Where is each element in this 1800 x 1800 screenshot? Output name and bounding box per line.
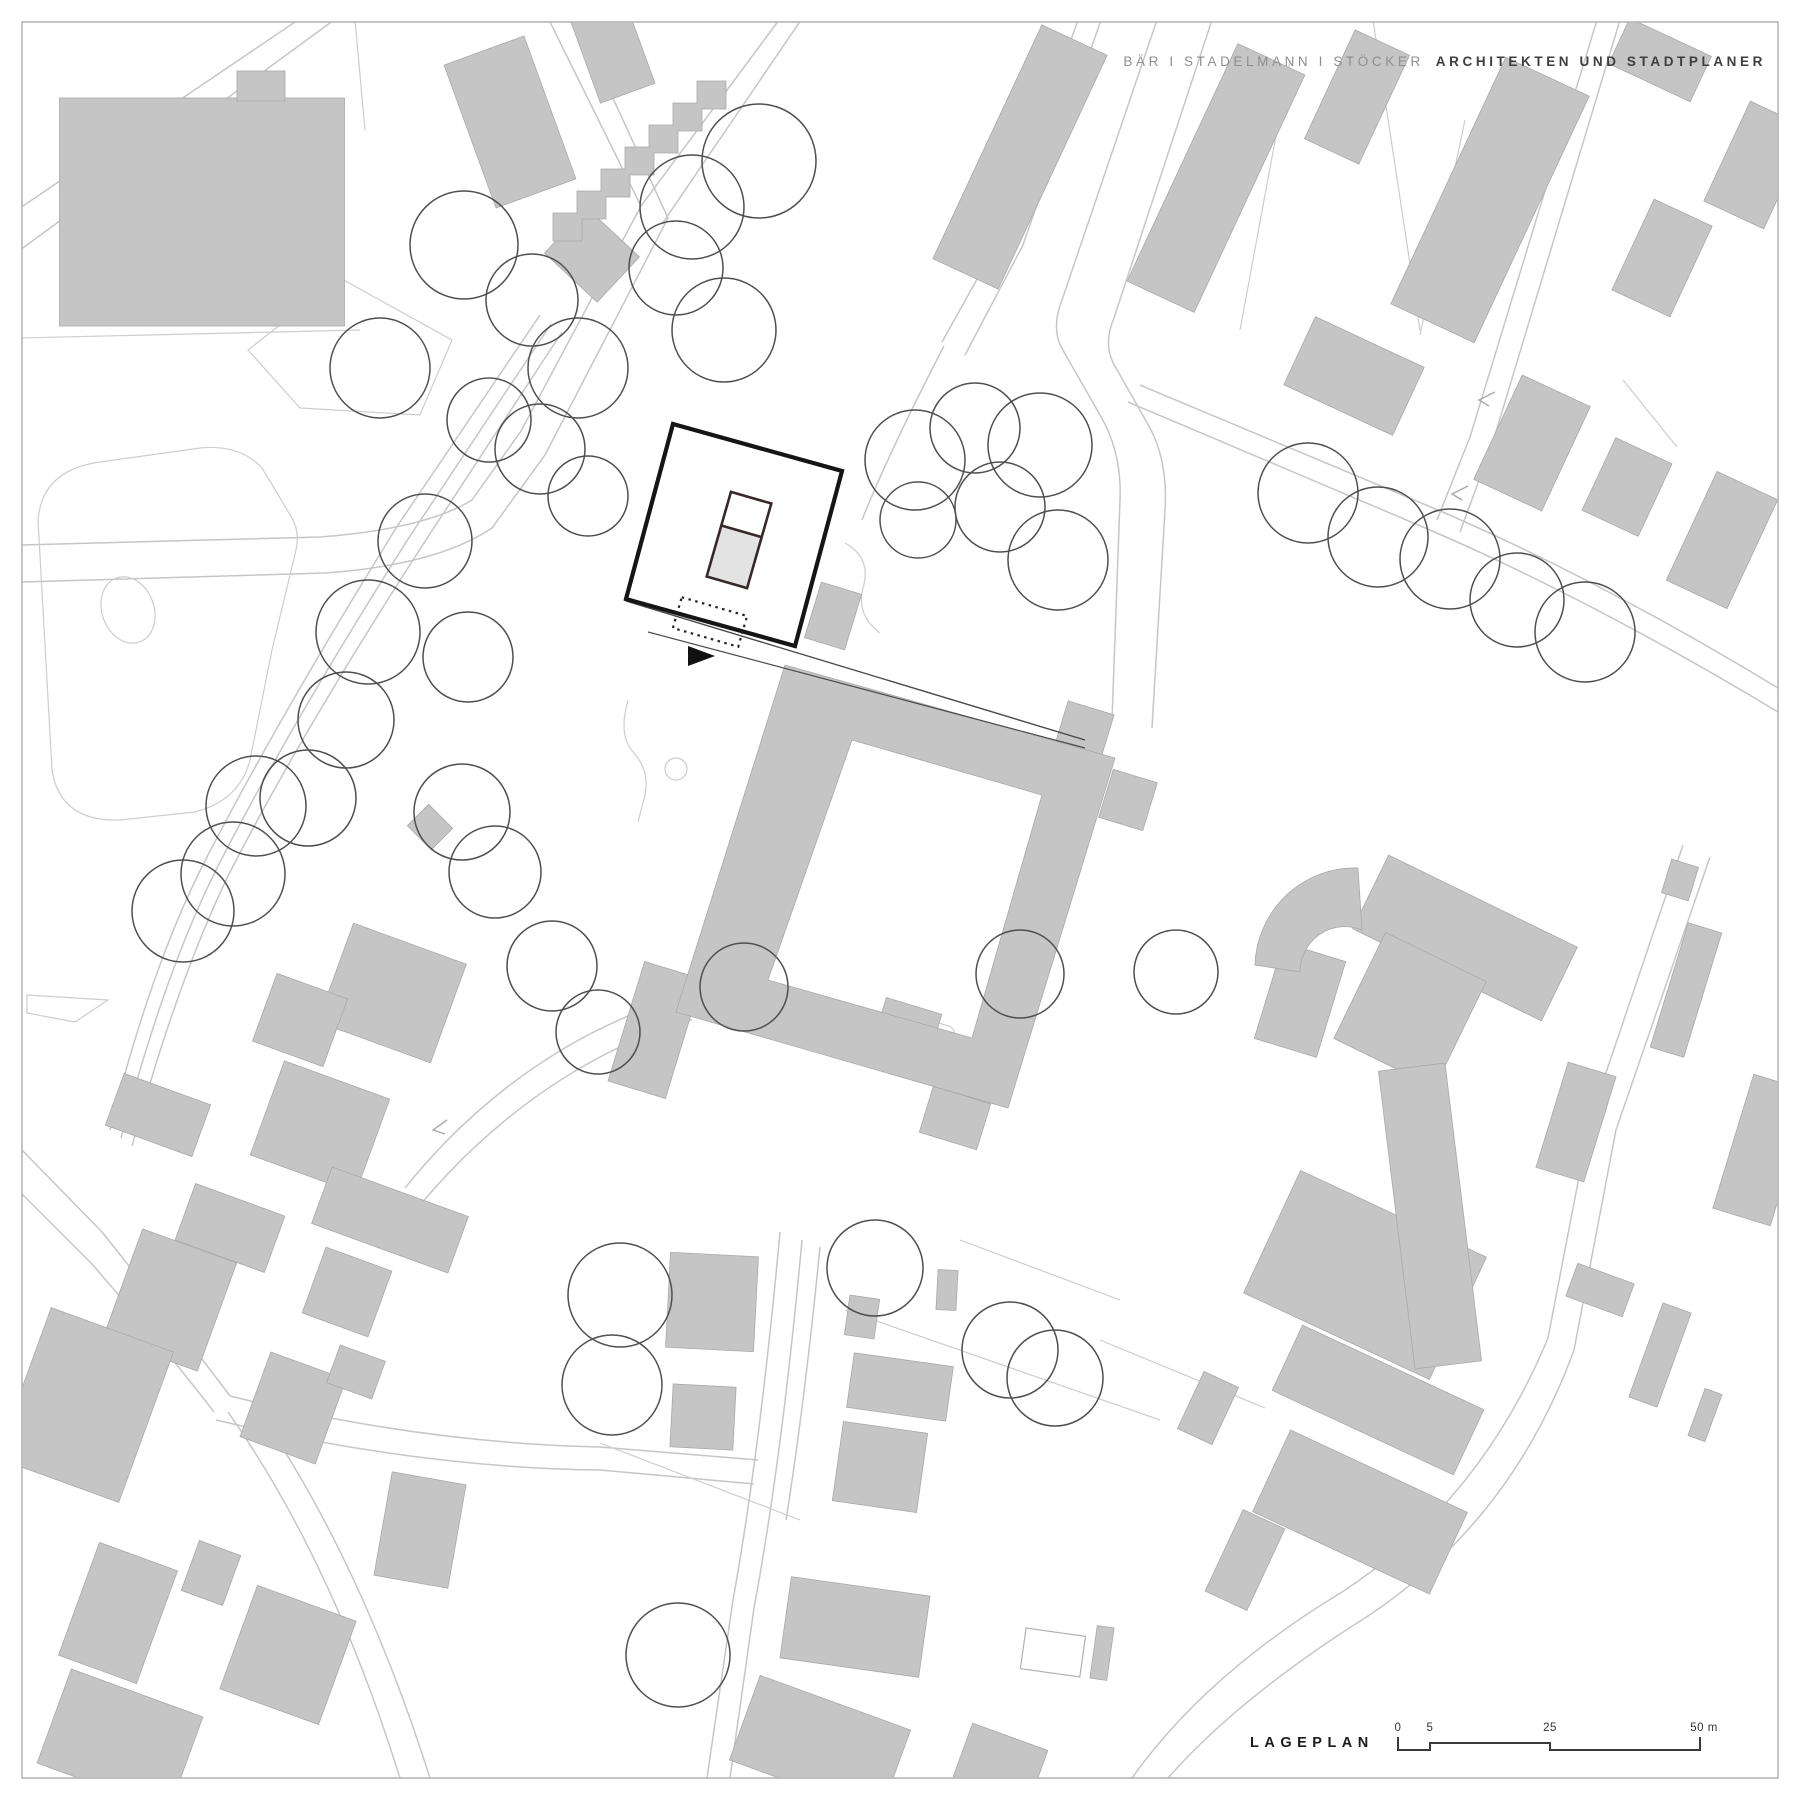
tree-canopy-icon bbox=[626, 1603, 730, 1707]
building-footprint bbox=[1536, 1062, 1616, 1182]
tree-canopy-icon bbox=[1470, 553, 1564, 647]
tree-canopy-icon bbox=[568, 1243, 672, 1347]
building-footprint bbox=[250, 1061, 389, 1193]
scale-tick-0: 0 bbox=[1395, 1722, 1402, 1734]
building-footprint bbox=[1661, 859, 1698, 901]
tree-canopy-icon bbox=[330, 318, 430, 418]
parcel-line bbox=[355, 20, 365, 130]
building-footprint bbox=[1582, 438, 1672, 537]
tree-canopy-icon bbox=[1007, 1330, 1103, 1426]
building-footprint bbox=[666, 1252, 759, 1351]
building-footprint bbox=[670, 1384, 736, 1450]
parcel-line bbox=[20, 330, 360, 338]
building-footprint bbox=[1612, 199, 1712, 317]
scale-bar: 0 5 25 50 m bbox=[1395, 1722, 1718, 1750]
building-footprint bbox=[1688, 1388, 1722, 1441]
road-line bbox=[641, 20, 779, 206]
park-outline bbox=[38, 447, 297, 820]
building-footprint bbox=[302, 1247, 392, 1337]
footpath bbox=[624, 700, 646, 822]
tree-canopy-icon bbox=[1328, 487, 1428, 587]
building-footprint bbox=[1629, 1303, 1691, 1407]
tree-canopy-icon bbox=[548, 456, 628, 536]
tree-canopy-icon bbox=[206, 756, 306, 856]
scale-bar-line bbox=[1398, 1737, 1700, 1750]
building-footprint bbox=[1304, 30, 1409, 164]
building-footprint bbox=[1474, 375, 1591, 511]
tree-canopy-icon bbox=[1400, 509, 1500, 609]
scale-tick-50m: 50 m bbox=[1690, 1722, 1718, 1734]
parcel-line bbox=[960, 1240, 1120, 1300]
building-footprint bbox=[58, 1542, 177, 1683]
building-footprint bbox=[60, 98, 345, 326]
footpath-circle bbox=[665, 758, 687, 780]
tree-canopy-icon bbox=[449, 826, 541, 918]
building-rects bbox=[0, 0, 1800, 1800]
building-footprint-outline bbox=[1020, 1628, 1085, 1677]
scale-tick-25: 25 bbox=[1543, 1722, 1557, 1734]
building-footprint bbox=[847, 1353, 954, 1421]
parcel-line bbox=[1623, 380, 1677, 447]
tree-canopy-icon bbox=[672, 278, 776, 382]
building-footprint bbox=[1127, 44, 1305, 313]
tree-canopy-icon bbox=[132, 860, 234, 962]
building-footprint bbox=[1090, 1626, 1114, 1681]
road-wedge bbox=[27, 995, 108, 1022]
building-footprint bbox=[832, 1421, 927, 1512]
road-line bbox=[1140, 385, 1778, 688]
tree-canopy-icon bbox=[1134, 930, 1218, 1014]
building-footprint bbox=[318, 923, 467, 1063]
building-footprint bbox=[237, 71, 285, 101]
tree-canopy-icon bbox=[865, 410, 965, 510]
building-footprint bbox=[844, 1295, 879, 1339]
building-footprint bbox=[952, 1723, 1048, 1800]
site-plan-map: BÄR I STADELMANN I STÖCKERARCHITEKTEN UN… bbox=[0, 0, 1800, 1800]
building-footprint bbox=[1177, 1371, 1238, 1444]
road-line bbox=[252, 1402, 430, 1778]
tree-canopy-icon bbox=[629, 221, 723, 315]
building-footprint bbox=[1566, 1263, 1634, 1316]
building-footprint bbox=[1704, 101, 1800, 229]
tree-canopy-icon bbox=[423, 612, 513, 702]
tree-canopy-icon bbox=[260, 750, 356, 846]
tree-canopy-icon bbox=[507, 921, 597, 1011]
building-footprint bbox=[240, 1352, 346, 1464]
firm-name-light: BÄR I STADELMANN I STÖCKER bbox=[1123, 54, 1423, 69]
tree-canopy-icon bbox=[562, 1335, 662, 1435]
building-footprint bbox=[181, 1541, 240, 1606]
terraced-building bbox=[553, 81, 726, 241]
tree-canopy-icon bbox=[298, 672, 394, 768]
road-line bbox=[1108, 20, 1212, 728]
building-footprint bbox=[374, 1472, 466, 1588]
road-line bbox=[862, 346, 944, 520]
tree-canopy-icon bbox=[1535, 582, 1635, 682]
title-block: LAGEPLAN 0 5 25 50 m bbox=[1250, 1722, 1718, 1751]
building-footprint bbox=[444, 36, 576, 208]
scale-tick-5: 5 bbox=[1427, 1722, 1434, 1734]
building-footprint bbox=[1666, 471, 1777, 608]
road-arrow-icon bbox=[1452, 486, 1468, 500]
tree-canopy-icon bbox=[962, 1302, 1058, 1398]
building-footprint bbox=[105, 1073, 210, 1156]
building-footprint bbox=[37, 1669, 203, 1800]
tree-canopy-icon bbox=[988, 393, 1092, 497]
building-footprint bbox=[729, 1675, 910, 1800]
plan-title: LAGEPLAN bbox=[1250, 1735, 1374, 1751]
building-footprint bbox=[1391, 57, 1589, 342]
road-arrow-icon bbox=[433, 1120, 447, 1134]
building-footprint bbox=[1650, 923, 1721, 1058]
building-footprint bbox=[804, 582, 861, 650]
tree-canopy-icon bbox=[880, 482, 956, 558]
existing-school-building bbox=[676, 665, 1115, 1108]
tree-canopy-icon bbox=[486, 254, 578, 346]
building-footprint bbox=[1713, 1074, 1800, 1225]
road-arrow-icon bbox=[1479, 392, 1495, 406]
park-pond bbox=[92, 569, 164, 651]
tree-canopy-icon bbox=[930, 383, 1020, 473]
tree-canopy-icon bbox=[640, 155, 744, 259]
building-footprint bbox=[780, 1577, 930, 1678]
tree-canopy-icon bbox=[528, 318, 628, 418]
parcel-line bbox=[1100, 1340, 1265, 1408]
tree-canopy-icon bbox=[955, 462, 1045, 552]
tree-canopy-icon bbox=[702, 104, 816, 218]
buildings-layer bbox=[0, 0, 1800, 1800]
building-footprint bbox=[1205, 1509, 1285, 1610]
tree-canopy-icon bbox=[1008, 510, 1108, 610]
building-footprint bbox=[1284, 317, 1424, 436]
road-line bbox=[786, 1247, 820, 1520]
firm-name-bold: ARCHITEKTEN UND STADTPLANER bbox=[1436, 54, 1766, 69]
firm-header: BÄR I STADELMANN I STÖCKERARCHITEKTEN UN… bbox=[1123, 54, 1766, 69]
building-footprint bbox=[936, 1270, 958, 1311]
tree-canopy-icon bbox=[410, 191, 518, 299]
